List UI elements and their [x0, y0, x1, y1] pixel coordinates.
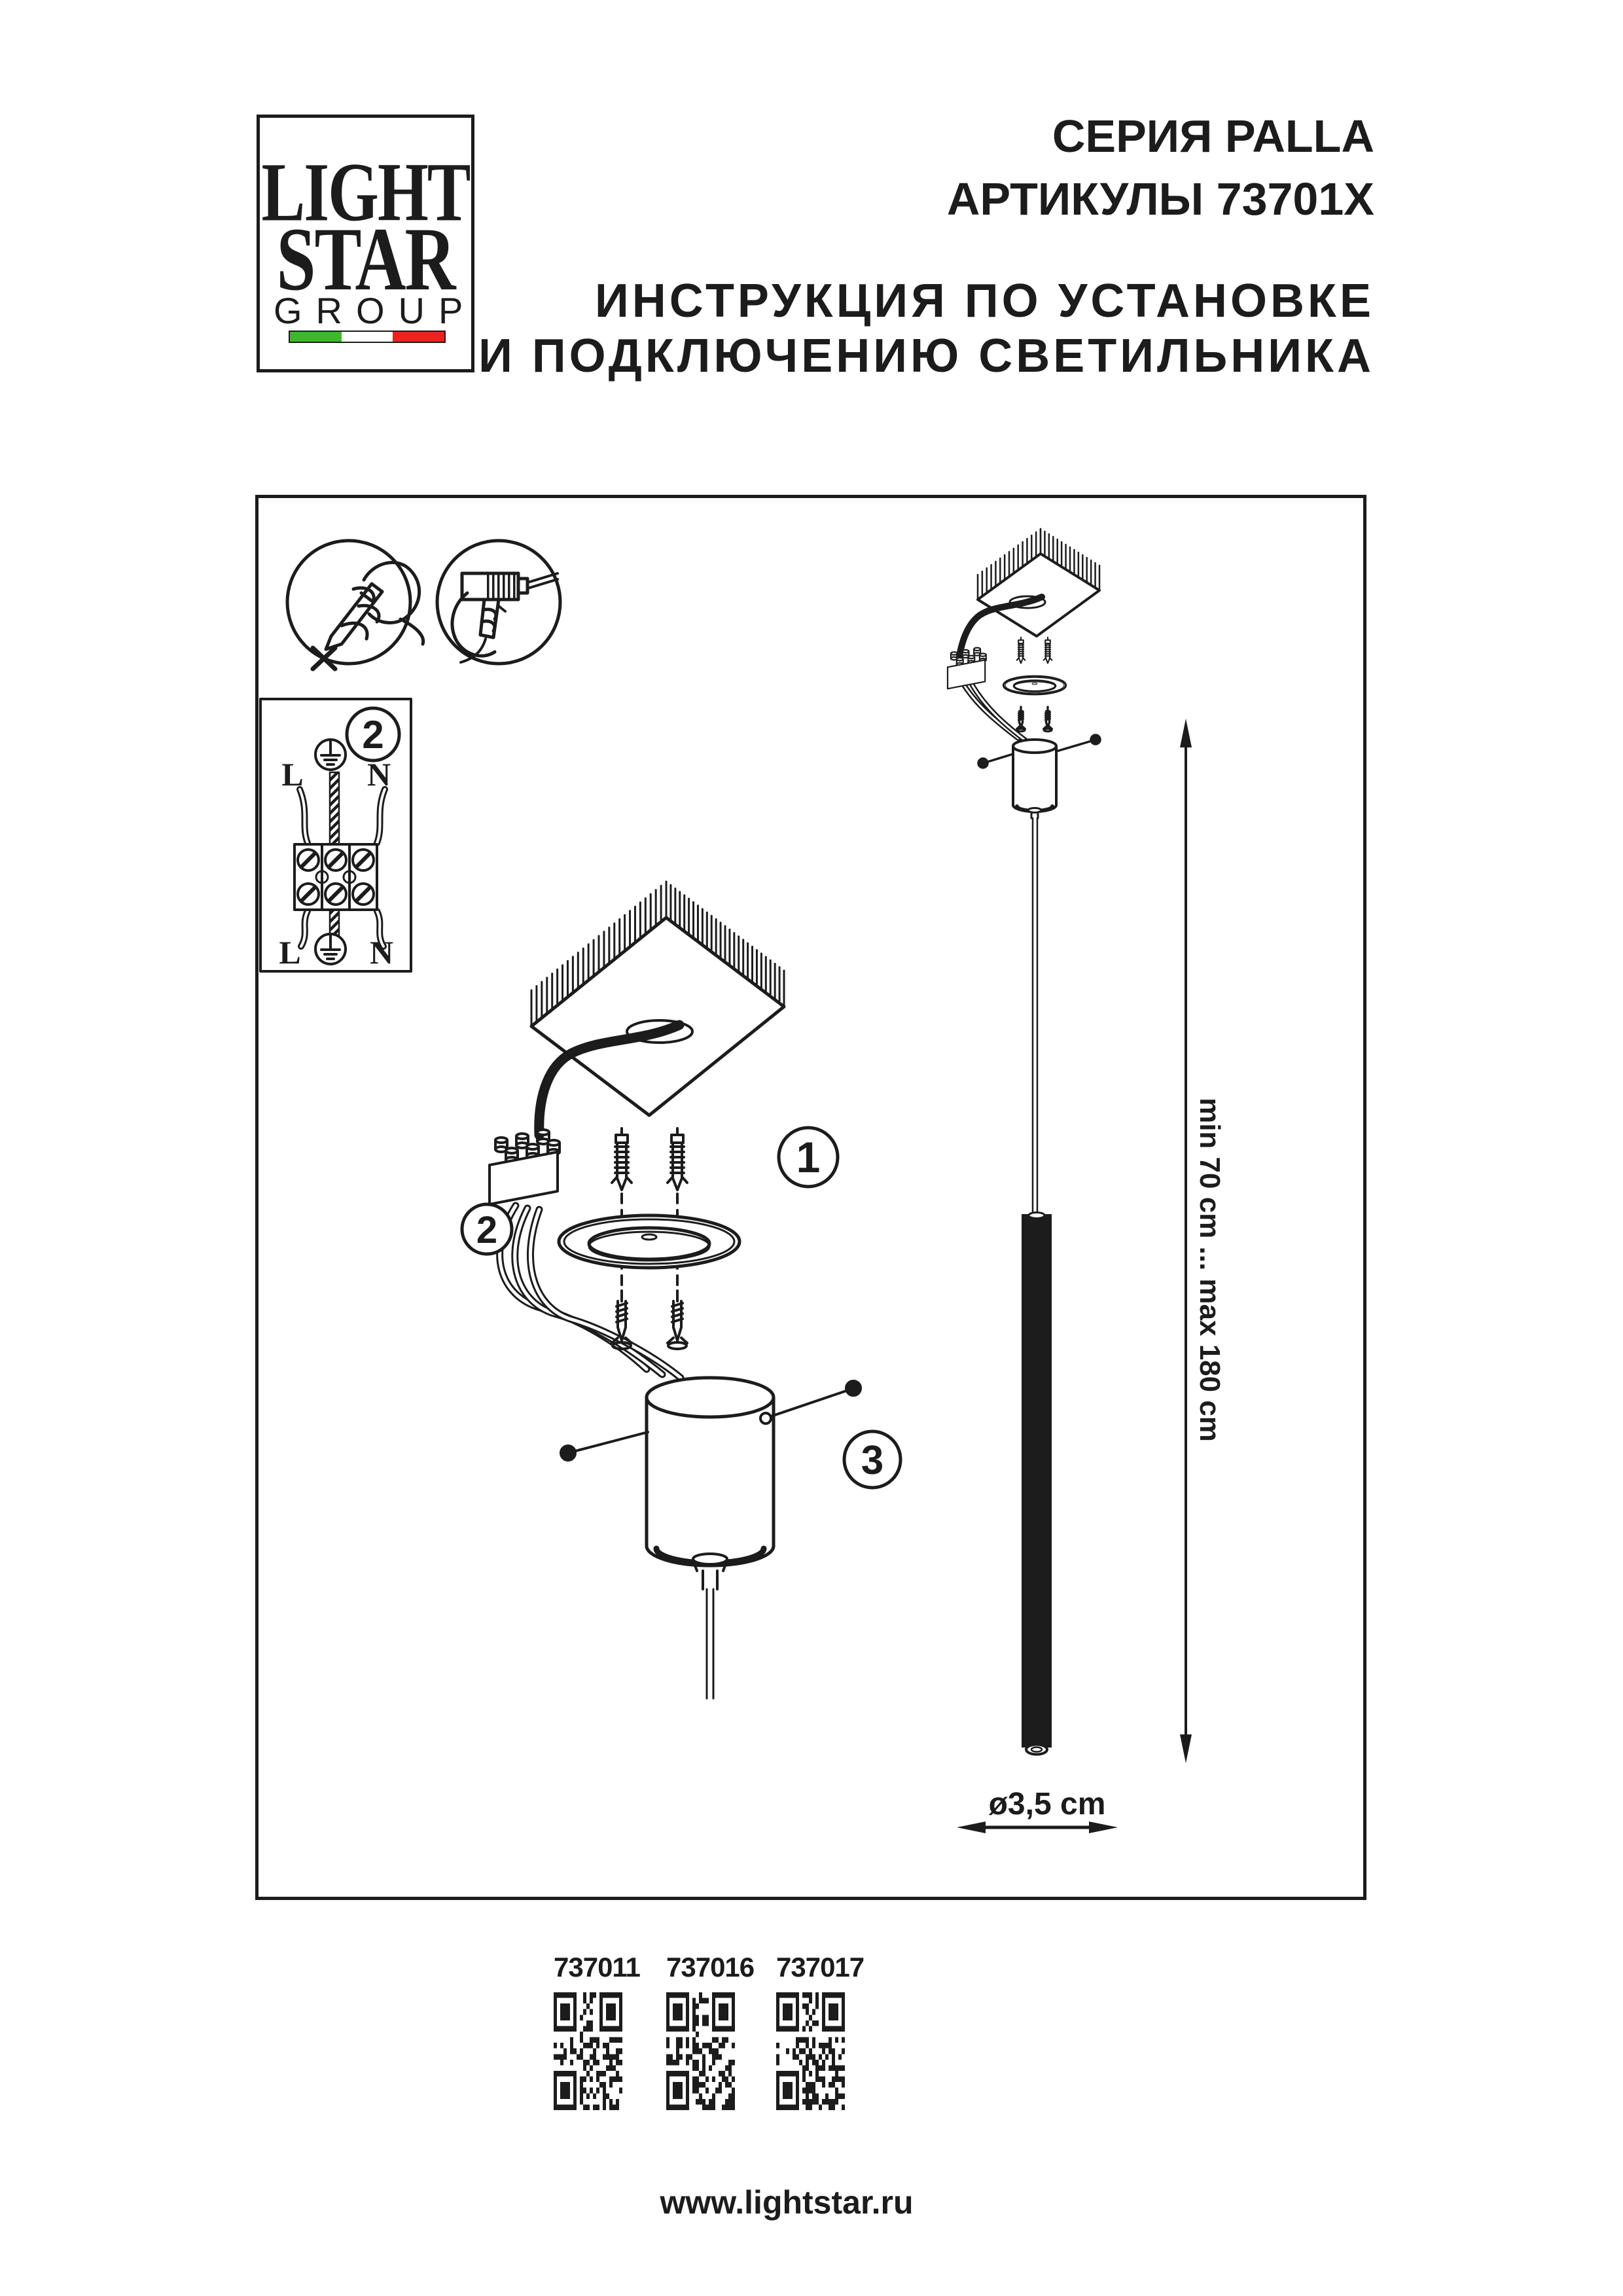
- terminal-block-exploded: [490, 1130, 560, 1204]
- terminal-block: [294, 844, 377, 910]
- terminal-block-small: [948, 648, 986, 689]
- step-1-badge: 1: [779, 1128, 838, 1187]
- mounting-screw-small: [1017, 707, 1052, 731]
- product-code-label: 737017: [776, 1952, 845, 1983]
- drill-icon: [437, 541, 560, 664]
- svg-text:3: 3: [861, 1438, 883, 1483]
- canopy: [647, 1378, 774, 1698]
- earth-wire: [330, 772, 339, 846]
- assembled-view: min 70 cm ... max 180 cm ø3,5 cm: [948, 529, 1226, 1833]
- qr-code: [776, 1992, 845, 2110]
- set-screw-pointer-right: [760, 1381, 861, 1424]
- height-dimension-label: min 70 cm ... max 180 cm: [1194, 1098, 1226, 1442]
- live-label-bottom: L: [279, 934, 300, 971]
- svg-text:1: 1: [796, 1133, 821, 1181]
- qr-code: [666, 1992, 735, 2110]
- svg-text:2: 2: [476, 1209, 497, 1251]
- wiring-diagram-box: L N L N 2: [260, 699, 411, 971]
- live-label-top: L: [281, 756, 303, 793]
- product-code-label: 737016: [666, 1952, 735, 1983]
- suspension-cord-small: [1033, 818, 1037, 1214]
- wall-anchor: [668, 1128, 687, 1190]
- canopy-small: [1013, 740, 1056, 818]
- step-2-badge-exploded: 2: [462, 1204, 512, 1254]
- mounting-screw: [668, 1291, 687, 1349]
- wall-anchor: [612, 1128, 632, 1190]
- exploded-view: 1 2 3: [462, 882, 901, 1698]
- set-screw-pointer-left: [561, 1432, 648, 1460]
- step-3-badge: 3: [844, 1431, 901, 1488]
- svg-text:2: 2: [362, 713, 383, 757]
- mark-position-icon: [287, 541, 423, 669]
- tube-lens: [1026, 1745, 1047, 1755]
- product-column: 737016: [666, 1952, 735, 2110]
- mounting-ring-small: [1003, 676, 1065, 694]
- diameter-dimension-arrow: [957, 1821, 1118, 1833]
- website-footer: www.lightstar.ru: [623, 2183, 950, 2221]
- mounting-ring: [559, 1215, 740, 1268]
- ground-symbol-top: [315, 740, 346, 770]
- instruction-sheet: LIGHT STAR GROUP СЕРИЯ PALLA АРТИКУЛЫ 73…: [0, 0, 1623, 2296]
- product-code-label: 737011: [554, 1952, 622, 1983]
- diameter-dimension-label: ø3,5 cm: [989, 1787, 1106, 1821]
- mounting-screw: [612, 1291, 632, 1349]
- ceiling-panel-small: [978, 529, 1099, 636]
- step-2-badge: 2: [347, 708, 399, 761]
- neutral-label-bottom: N: [370, 934, 393, 971]
- product-column: 737017: [776, 1952, 845, 2110]
- ceiling-panel: [531, 882, 784, 1115]
- height-dimension-line: [1180, 719, 1192, 1763]
- qr-code: [554, 1992, 622, 2110]
- wall-anchor-small: [1017, 637, 1052, 663]
- product-column: 737011: [554, 1952, 622, 2110]
- ground-symbol-bottom: [315, 934, 346, 964]
- pendant-tube: [1022, 1213, 1052, 1755]
